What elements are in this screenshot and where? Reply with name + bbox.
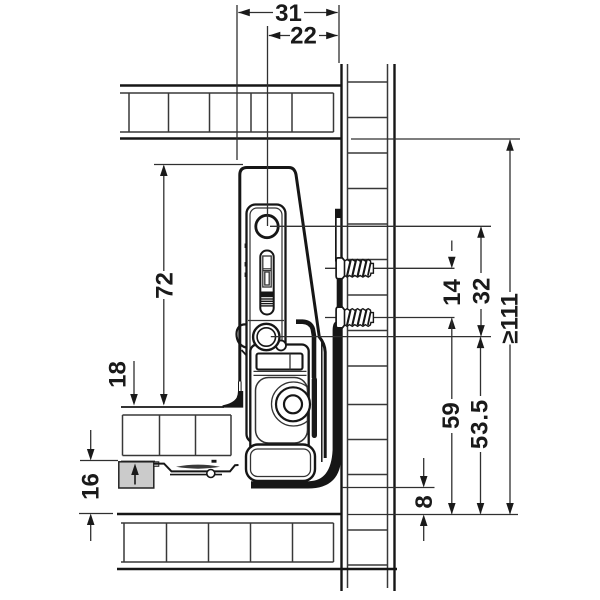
svg-text:72: 72 bbox=[151, 272, 178, 299]
svg-text:8: 8 bbox=[411, 495, 438, 508]
svg-text:53.5: 53.5 bbox=[467, 399, 494, 449]
svg-text:14: 14 bbox=[439, 279, 466, 306]
svg-text:22: 22 bbox=[290, 23, 317, 50]
svg-text:≥111: ≥111 bbox=[497, 293, 524, 344]
svg-text:18: 18 bbox=[105, 361, 132, 388]
svg-text:16: 16 bbox=[78, 473, 105, 500]
svg-text:32: 32 bbox=[469, 278, 496, 305]
svg-text:59: 59 bbox=[438, 402, 465, 429]
